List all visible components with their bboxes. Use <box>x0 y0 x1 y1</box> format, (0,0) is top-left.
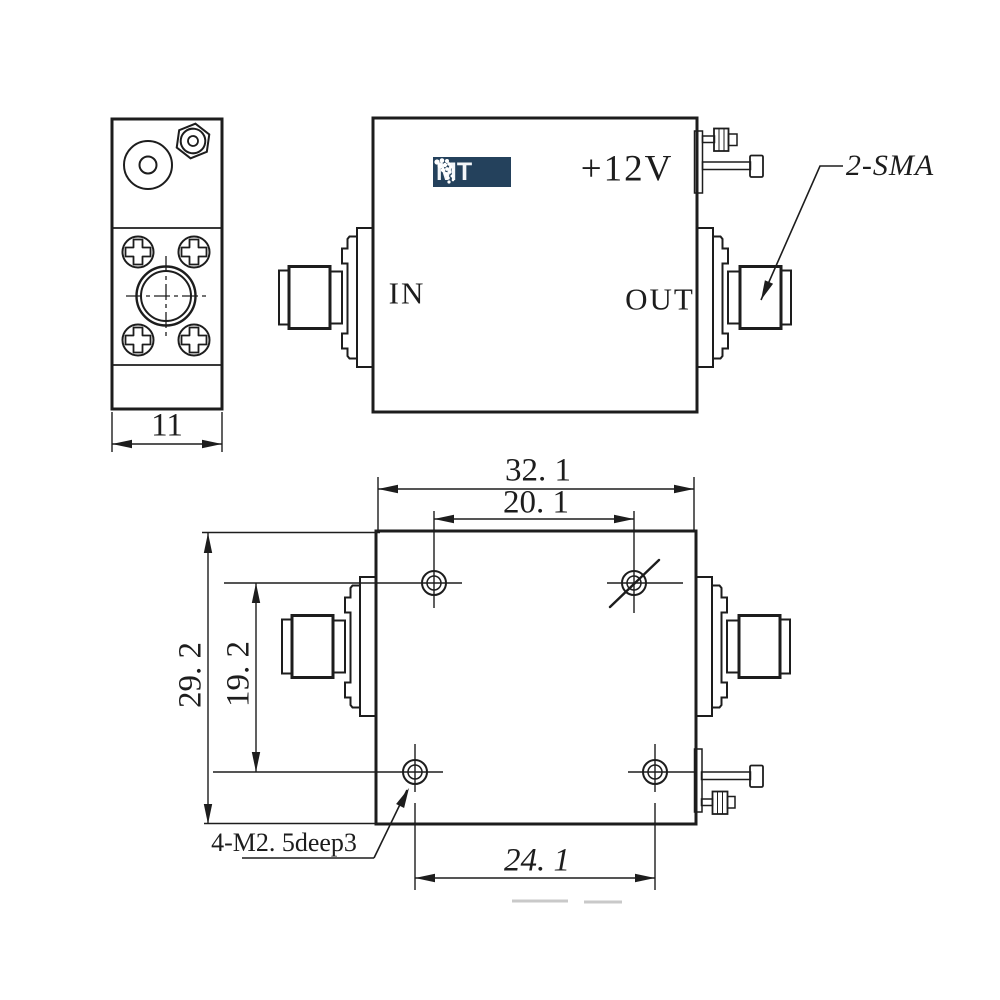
brand-logo: MT <box>433 157 511 187</box>
dim-overall-width-label: 32. 1 <box>505 455 571 488</box>
sma-callout-label: 2-SMA <box>846 151 934 181</box>
washer-icon <box>124 141 172 189</box>
out-port-label: OUT <box>625 284 695 315</box>
thread-callout-label: 4-M2. 5deep3 <box>211 830 357 856</box>
logo-mark-icon <box>433 157 459 187</box>
dim-top-hole-span-label: 20. 1 <box>503 487 569 520</box>
dim-overall-height-label: 29. 2 <box>175 642 208 708</box>
dc-terminals-bottom <box>695 749 764 814</box>
side-view <box>112 119 222 452</box>
phillips-screw-icon <box>123 325 154 356</box>
voltage-label: +12V <box>581 151 674 188</box>
sma-connector-bottom-left <box>282 577 376 716</box>
in-port-label: IN <box>389 278 426 309</box>
drawing-canvas: 11 +12V IN OUT 2-SMA 32. 1 20. 1 29. 2 1… <box>0 0 1000 1000</box>
dim-bottom-hole-span-label: 24. 1 <box>504 845 570 878</box>
phillips-screw-icon <box>123 237 154 268</box>
sma-connector-bottom-right <box>696 577 790 716</box>
sma-connector-out <box>697 228 791 367</box>
dim-side-width-label: 11 <box>151 410 183 443</box>
sma-connector-in <box>279 228 373 367</box>
scan-artifact <box>512 901 622 902</box>
dc-terminals-front <box>695 129 764 194</box>
phillips-screw-icon <box>179 325 210 356</box>
phillips-screw-icon <box>179 237 210 268</box>
sma-callout-leader <box>761 166 843 300</box>
dim-side-hole-span-label: 19. 2 <box>223 641 256 707</box>
hex-nut-icon <box>176 122 211 161</box>
front-view <box>279 118 843 412</box>
